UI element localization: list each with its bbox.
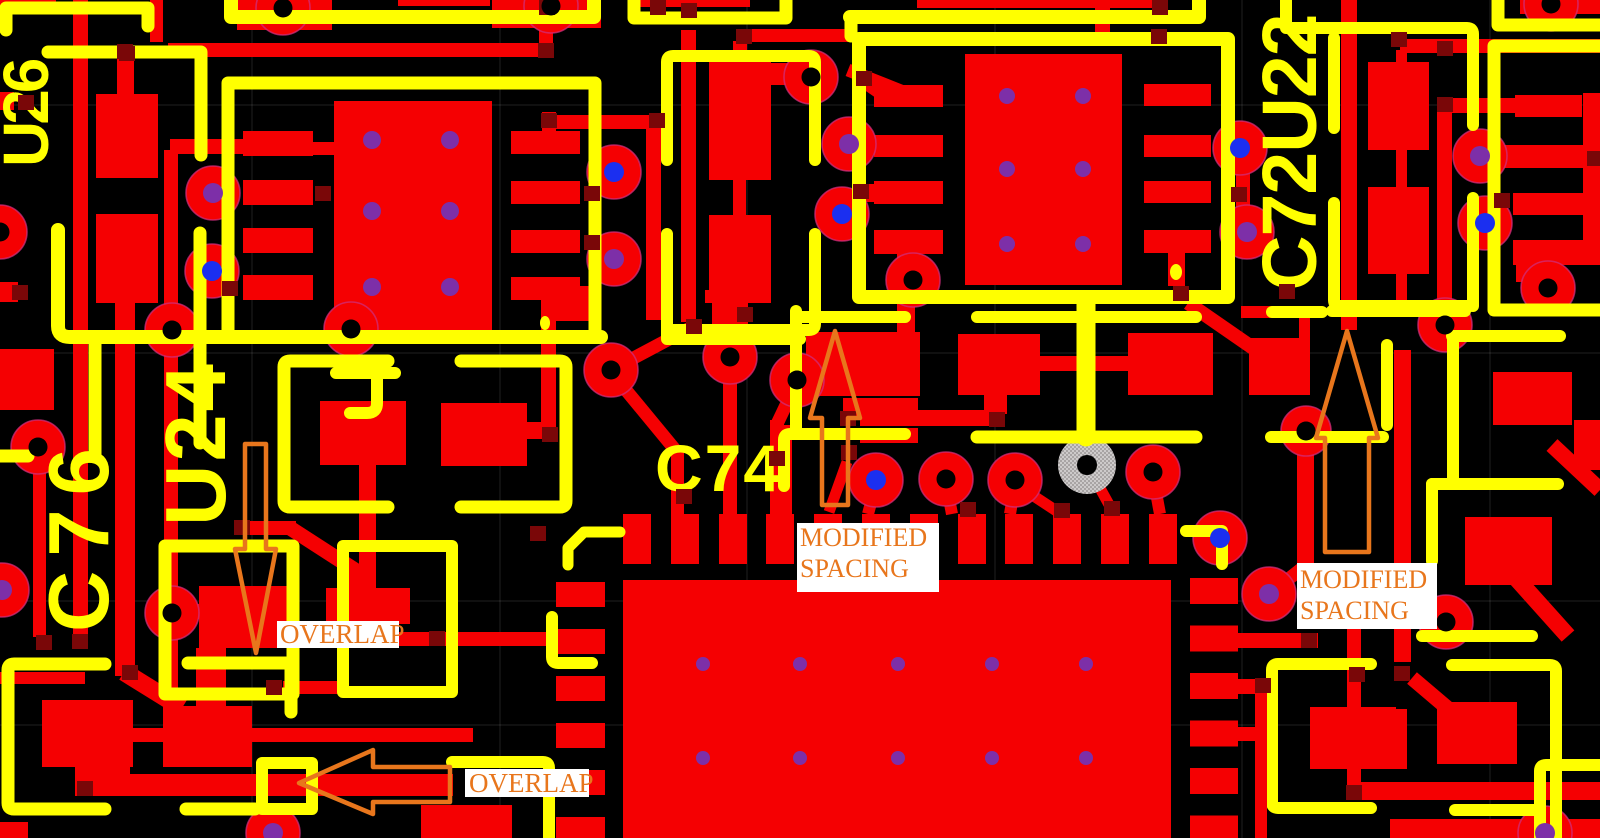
svg-text:U24: U24 [149,361,244,526]
svg-text:MODIFIED: MODIFIED [800,523,927,552]
svg-text:MODIFIED: MODIFIED [1300,565,1427,594]
svg-text:SPACING: SPACING [800,554,909,583]
svg-text:OVERLAP: OVERLAP [280,619,405,649]
svg-text:OVERLAP: OVERLAP [469,768,594,798]
svg-text:SPACING: SPACING [1300,596,1409,625]
svg-text:C72U22: C72U22 [1247,14,1333,291]
svg-text:C74: C74 [655,431,782,505]
svg-text:U26: U26 [0,59,62,167]
svg-text:C76: C76 [32,434,127,632]
